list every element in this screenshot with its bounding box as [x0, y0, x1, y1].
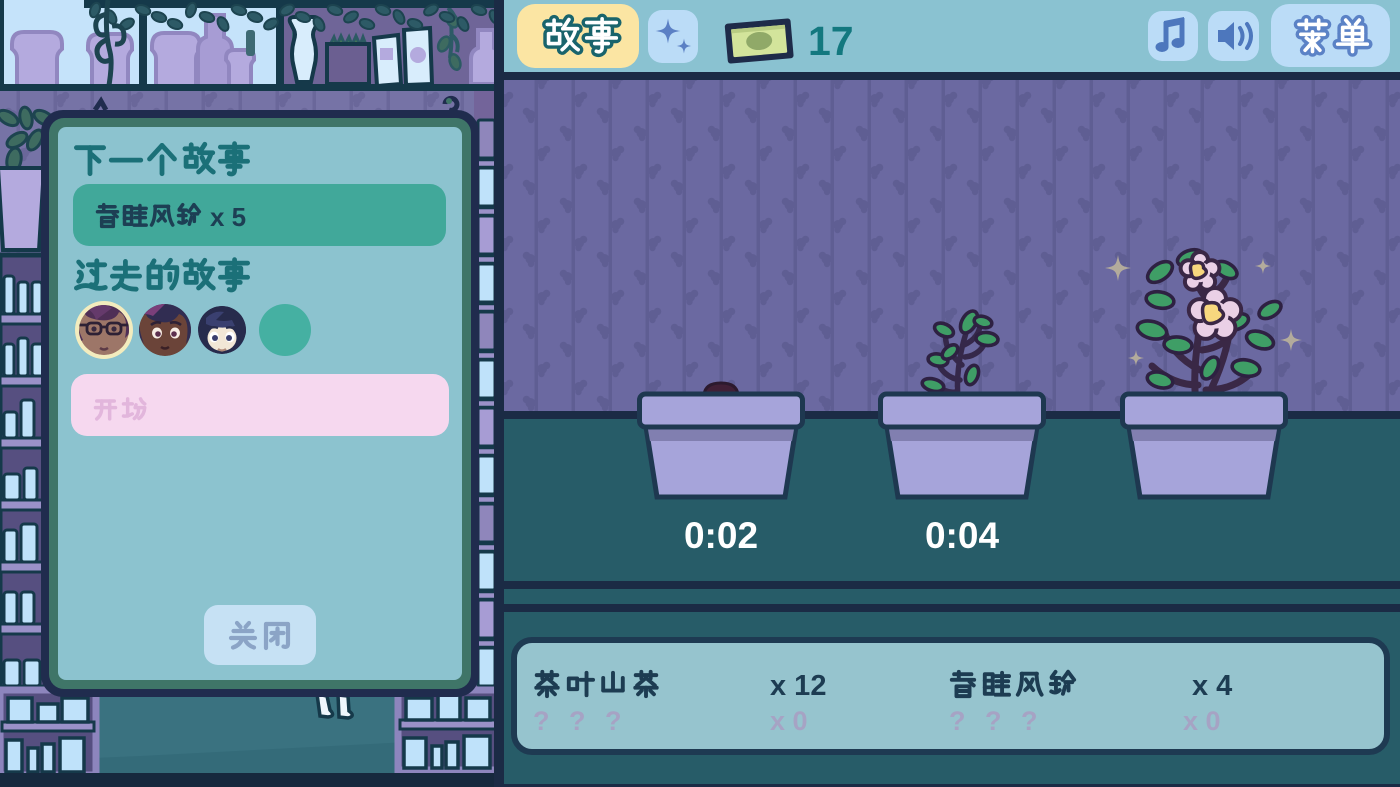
svg-text:0:04: 0:04 [925, 515, 999, 556]
svg-text:? ? ?: ? ? ? [533, 706, 627, 736]
svg-text:x 0: x 0 [1183, 706, 1221, 736]
svg-text:x 5: x 5 [210, 202, 246, 232]
svg-text:x 4: x 4 [1192, 670, 1232, 702]
svg-text:0:02: 0:02 [684, 515, 758, 556]
svg-text:17: 17 [808, 18, 854, 64]
svg-text:? ? ?: ? ? ? [949, 706, 1043, 736]
svg-text:x 12: x 12 [770, 670, 826, 702]
svg-text:x 0: x 0 [770, 706, 808, 736]
